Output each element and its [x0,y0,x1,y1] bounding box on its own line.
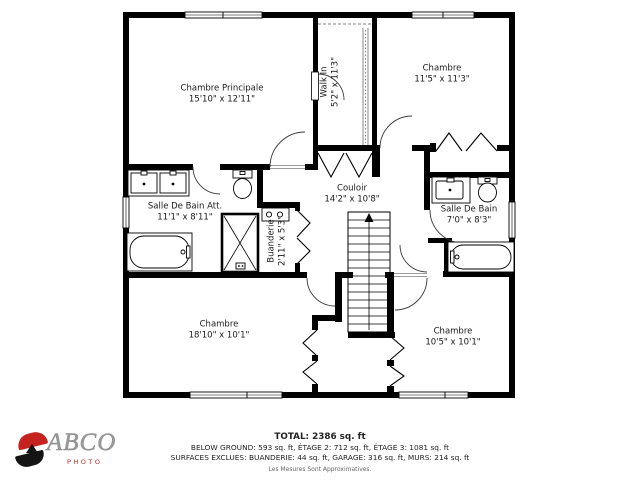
bathroom-vanity [432,177,470,203]
room-name: Chambre Principale [181,84,264,95]
window [190,392,282,398]
room-name: Chambre [189,320,250,331]
room-dims: 11'1" x 8'11" [148,212,222,223]
room-label-bedroom-bottom-right: Chambre 10'5" x 10'1" [425,327,480,348]
laundry-door-1 [297,210,310,237]
door-arc-bedroom-top-right [380,116,412,148]
window [399,392,468,398]
door-arc-bedroom-bottom-right [395,278,427,310]
room-label-bedroom-top-right: Chambre 11'5" x 11'3" [414,64,469,85]
closet-door-top-right-1 [436,133,462,151]
room-dims: 7'0" x 8'3" [441,215,498,226]
room-label-hallway: Couloir 14'2" x 10'8" [324,184,379,205]
room-dims: 18'10" x 10'1" [189,330,250,341]
closet-door-top-right-2 [466,133,497,151]
ensuite-bathtub [127,233,192,271]
ensuite-toilet [233,170,252,199]
window [185,12,262,18]
room-name: Buanderie [267,216,278,266]
room-name: Chambre [414,64,469,75]
staircase [348,212,390,332]
abco-photo-logo: ABCO PHOTO [14,429,110,475]
linen-closet-door-2 [346,153,372,177]
door-arc-hall-nook [400,245,427,272]
laundry-door-2 [297,238,310,264]
room-name: Salle De Bain [441,205,498,216]
room-name: Chambre [425,327,480,338]
room-dims: 14'2" x 10'8" [324,194,379,205]
room-label-bedroom-bottom-left: Chambre 18'10" x 10'1" [189,320,250,341]
door-arc-bedroom-bottom-left [307,278,335,306]
room-label-master-bedroom: Chambre Principale 15'10" x 12'11" [181,84,264,105]
window [509,202,515,238]
room-name: Couloir [324,184,379,195]
room-dims: 10'5" x 10'1" [425,337,480,348]
door-arc-master [270,132,305,167]
closet-door-bottom-right-1 [390,336,404,360]
bathroom-bathtub [448,242,514,272]
bathroom-toilet [478,177,497,202]
window [123,197,129,228]
room-label-laundry: Buanderie 2'11" x 5'3" [267,216,288,266]
door-arc-ensuite [193,167,220,194]
linen-closet-door-1 [318,153,344,177]
closet-door-bottom-right-2 [390,366,404,386]
room-label-walk-in: Walk In 5'2" x 11'3" [320,57,341,107]
logo-base-shape [15,450,46,470]
closet-door-bottom-left-1 [303,330,317,356]
room-label-ensuite-bathroom: Salle De Bain Att. 11'1" x 8'11" [148,202,222,223]
room-dims: 2'11" x 5'3" [277,216,288,266]
room-dims: 11'5" x 11'3" [414,74,469,85]
ensuite-double-vanity [128,170,189,196]
logo-brand-text: ABCO [47,429,116,457]
room-label-bathroom: Salle De Bain 7'0" x 8'3" [441,205,498,226]
shower [222,214,258,272]
logo-sub-text: PHOTO [67,458,103,466]
room-name: Walk In [320,57,331,107]
window [412,12,474,18]
closet-door-bottom-left-2 [303,361,317,384]
room-dims: 15'10" x 12'11" [181,94,264,105]
room-dims: 5'2" x 11'3" [330,57,341,107]
room-name: Salle De Bain Att. [148,202,222,213]
